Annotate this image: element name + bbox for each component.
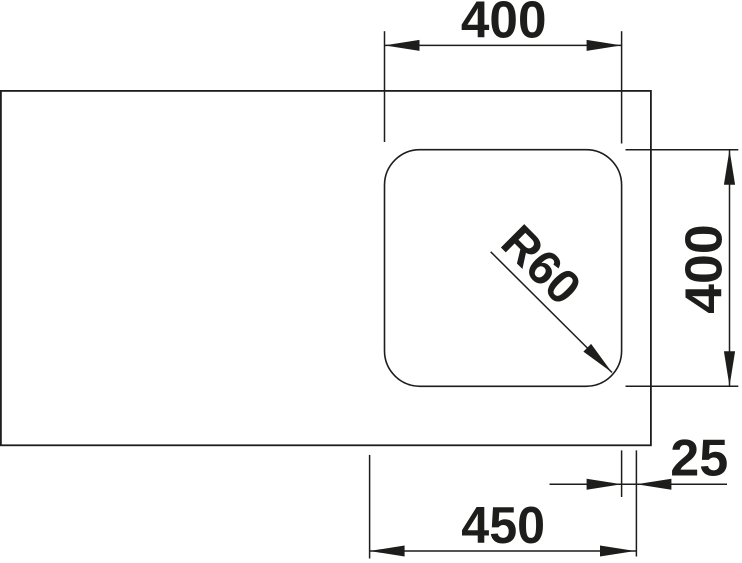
svg-text:25: 25 bbox=[670, 430, 728, 488]
svg-text:400: 400 bbox=[675, 224, 733, 314]
svg-text:400: 400 bbox=[461, 0, 547, 49]
svg-text:450: 450 bbox=[461, 497, 545, 555]
svg-text:R60: R60 bbox=[491, 216, 591, 316]
